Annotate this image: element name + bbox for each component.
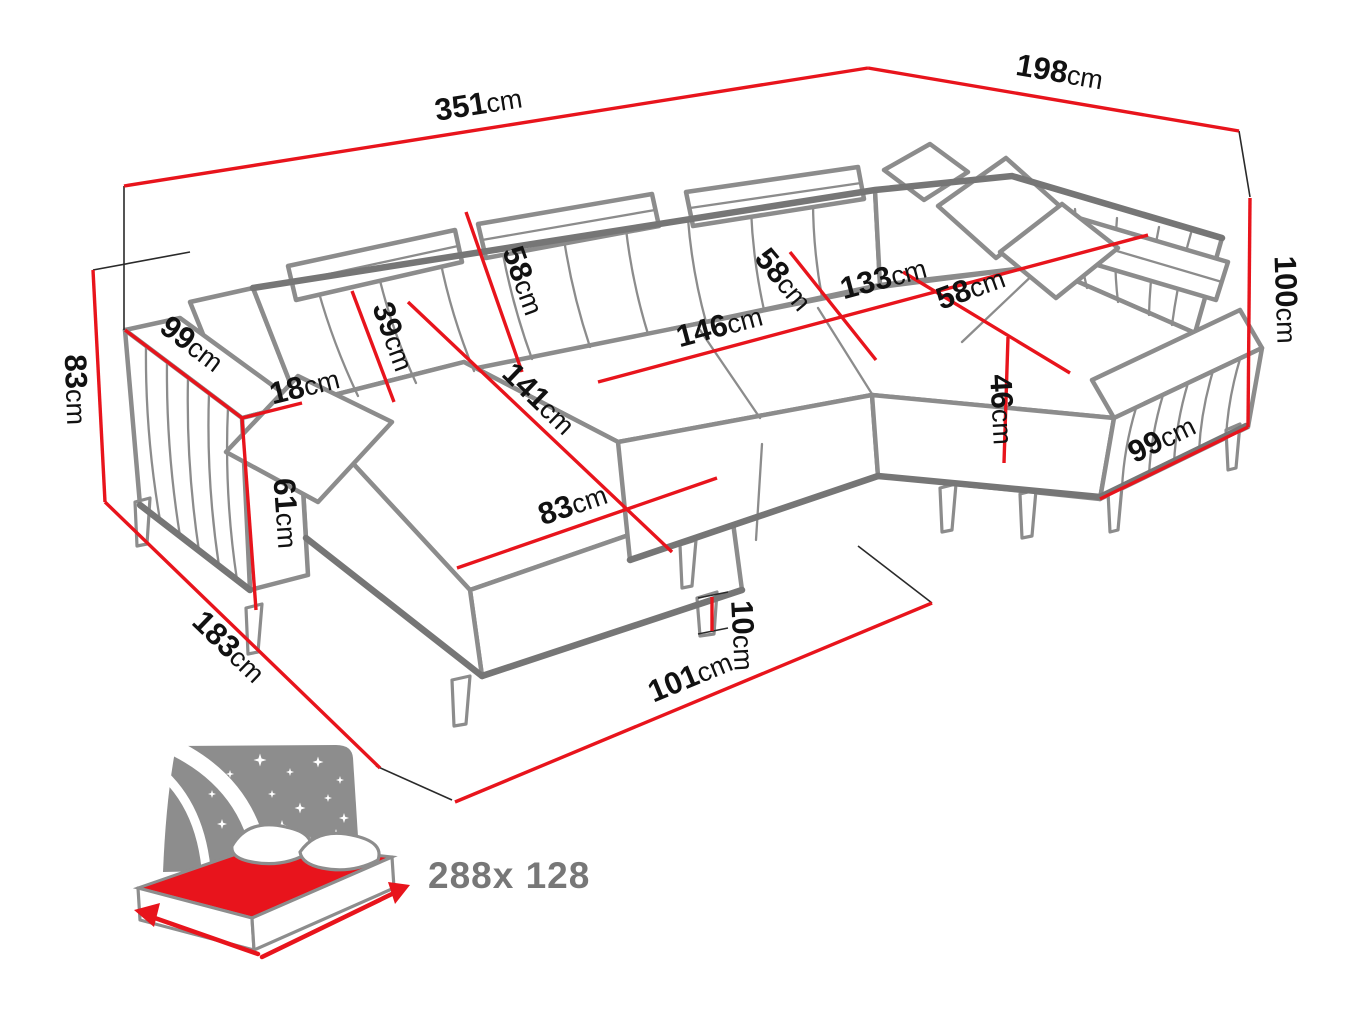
label-total-depth-right: 198cm xyxy=(1014,47,1106,96)
label-height-right: 100cm xyxy=(1267,255,1305,344)
bed-pillow-left xyxy=(232,825,311,864)
label-base-width-front: 101cm xyxy=(643,643,737,709)
bed-pillow-right xyxy=(300,833,379,870)
dim-line-height-right xyxy=(1248,198,1250,427)
sofa-dimension-diagram: 351cm 198cm 100cm 99cm 83cm 183cm 101cm … xyxy=(0,0,1352,1014)
label-height-left: 83cm xyxy=(58,354,95,426)
diagram-canvas: 351cm 198cm 100cm 99cm 83cm 183cm 101cm … xyxy=(0,0,1352,1014)
sofa-drawing xyxy=(125,144,1262,726)
label-leg-height: 10cm xyxy=(724,599,763,671)
sleeping-size-label: 288x 128 xyxy=(428,855,590,896)
label-total-width-back: 351cm xyxy=(432,79,524,127)
label-armrest-front-height: 61cm xyxy=(267,477,307,550)
dim-line-total-width-back xyxy=(124,68,868,186)
label-seat-height: 46cm xyxy=(983,373,1022,445)
